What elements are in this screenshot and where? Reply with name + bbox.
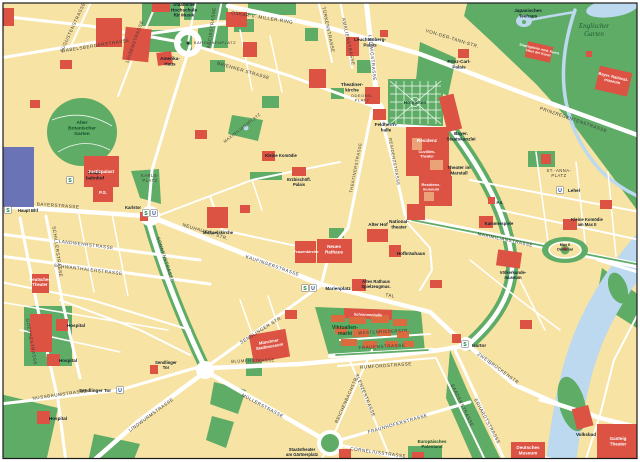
- ubahn-station-icon: U: [151, 210, 158, 217]
- place-label: Alter Hof: [368, 222, 388, 227]
- svg-text:S: S: [303, 286, 307, 292]
- place-label: StaatlicheHochschulefür Musik: [171, 2, 197, 18]
- svg-text:S: S: [6, 208, 10, 214]
- sendlinger-tor-gate: [150, 365, 158, 374]
- place-label: Sendlinger Tor: [79, 388, 111, 393]
- place-label: Isartor: [472, 343, 487, 348]
- place-label: Altes RathausSpielzeugmus.: [361, 279, 390, 289]
- ubahn-station-icon: U: [310, 285, 317, 292]
- place-label: Volksbad: [576, 432, 596, 437]
- street-label: KARLS-PLATZ: [141, 173, 159, 183]
- place-label: DeutschesMuseum: [516, 445, 540, 455]
- place-label: Lehel: [568, 188, 580, 193]
- svg-text:U: U: [311, 286, 315, 292]
- feldherrnhalle-building: [373, 109, 386, 120]
- place-label: Marienplatz: [325, 286, 351, 291]
- svg-text:S: S: [144, 211, 148, 217]
- svg-text:U: U: [558, 188, 562, 194]
- sbahn-station-icon: S: [5, 207, 12, 214]
- svg-text:S: S: [463, 342, 467, 348]
- place-label: Michaelskirche: [203, 230, 234, 235]
- place-label: National-theater: [389, 219, 409, 229]
- place-label: Hospital: [49, 416, 67, 421]
- svg-text:U: U: [152, 211, 156, 217]
- place-label: Residenz: [417, 138, 438, 143]
- sbahn-station-icon: S: [143, 210, 150, 217]
- ubahn-station-icon: U: [117, 387, 124, 394]
- sbahn-station-icon: S: [302, 285, 309, 292]
- map-canvas: OSKAR-V.-MILLER-RINGGABELSBERGERSTRASSEB…: [0, 0, 640, 462]
- park-label: EuropäischesPatentamt: [418, 439, 447, 449]
- place-label: P.S.: [496, 200, 503, 205]
- hauptbahnhof-building: [0, 147, 34, 207]
- place-label: P.S.: [99, 190, 107, 195]
- park-label: Hofgarten: [404, 100, 427, 106]
- place-label: Cuvilliés-Theater: [419, 150, 437, 158]
- place-label: Hospital: [67, 323, 85, 328]
- svg-text:S: S: [68, 178, 72, 184]
- place-label: Theater imMarstall: [447, 165, 470, 175]
- sbahn-station-icon: S: [462, 341, 469, 348]
- place-label: Haupt Bhf: [18, 208, 39, 213]
- isartor-gate: [452, 334, 461, 343]
- place-label: Frauenkirche: [293, 249, 319, 254]
- place-label: NeuesRathaus: [325, 244, 344, 254]
- place-label: Hospital: [59, 358, 77, 363]
- nationaltheater-building: [407, 204, 425, 220]
- street-label: KAROLINENPLATZ: [194, 40, 236, 45]
- place-label: Kammerspiele: [485, 221, 514, 226]
- place-label: Kleine Komödie: [265, 153, 297, 158]
- sbahn-station-icon: S: [67, 177, 74, 184]
- ubahn-station-icon: U: [557, 187, 564, 194]
- place-label: Justizpalast: [88, 169, 115, 174]
- svg-text:U: U: [118, 388, 122, 394]
- place-label: Residenz-museum: [422, 182, 442, 192]
- place-label: Staatstheateram Gärtnerplatz: [286, 447, 318, 457]
- place-label: Karlstor: [125, 205, 141, 210]
- place-label: GasteigTheater: [610, 436, 627, 446]
- munich-city-map: OSKAR-V.-MILLER-RINGGABELSBERGERSTRASSEB…: [0, 0, 640, 462]
- place-label: Hofbräuhaus: [397, 251, 426, 256]
